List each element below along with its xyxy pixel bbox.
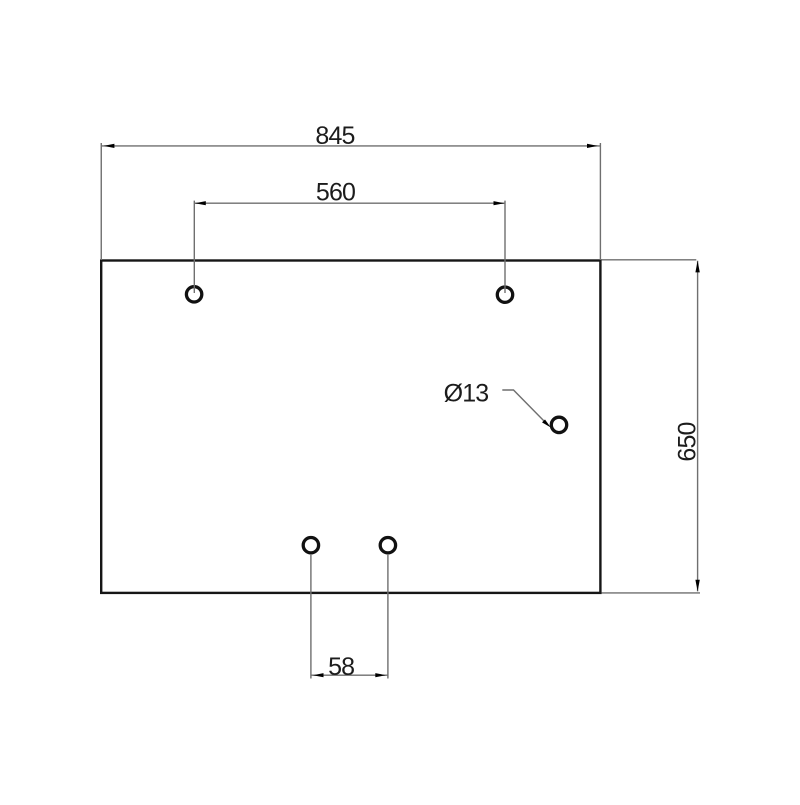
svg-text:650: 650	[674, 422, 702, 461]
svg-text:845: 845	[315, 122, 354, 150]
svg-text:560: 560	[316, 179, 355, 207]
svg-text:58: 58	[328, 653, 354, 681]
svg-text:Ø13: Ø13	[444, 379, 489, 407]
